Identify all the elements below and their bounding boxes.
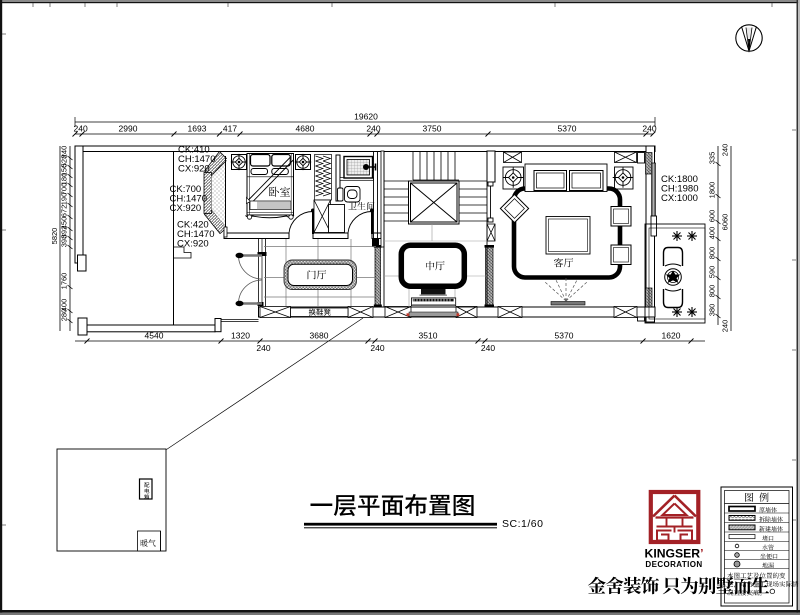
svg-text:CX:920: CX:920: [177, 239, 209, 250]
svg-text:400: 400: [708, 227, 717, 240]
svg-text:335: 335: [708, 152, 717, 165]
svg-text:CX:920: CX:920: [170, 203, 202, 214]
svg-text:19620: 19620: [354, 112, 378, 122]
svg-text:190: 190: [60, 193, 69, 206]
svg-text:3510: 3510: [419, 331, 438, 341]
svg-text:CX:920: CX:920: [178, 164, 210, 175]
svg-text:3750: 3750: [423, 124, 442, 134]
svg-text:240: 240: [366, 124, 380, 134]
svg-text:5370: 5370: [558, 124, 577, 134]
svg-text:240: 240: [74, 124, 88, 134]
svg-text:2990: 2990: [119, 124, 138, 134]
svg-text:3680: 3680: [310, 331, 329, 341]
svg-text:4680: 4680: [296, 124, 315, 134]
svg-text:240: 240: [256, 343, 270, 353]
svg-text:1320: 1320: [231, 331, 250, 341]
svg-text:280: 280: [60, 309, 69, 322]
svg-text:590: 590: [708, 266, 717, 279]
svg-text:5820: 5820: [50, 228, 59, 245]
svg-text:240: 240: [642, 124, 656, 134]
svg-text:240: 240: [721, 320, 730, 333]
svg-text:5370: 5370: [555, 331, 574, 341]
svg-text:1620: 1620: [662, 331, 681, 341]
svg-text:380: 380: [708, 304, 717, 317]
svg-text:6060: 6060: [721, 214, 730, 231]
svg-text:CX:1000: CX:1000: [661, 193, 698, 204]
svg-text:672: 672: [60, 205, 69, 218]
svg-text:417: 417: [223, 124, 237, 134]
svg-text:1800: 1800: [708, 182, 717, 199]
svg-text:800: 800: [708, 285, 717, 298]
svg-text:240: 240: [721, 144, 730, 157]
svg-text:600: 600: [708, 210, 717, 223]
svg-text:1760: 1760: [60, 273, 69, 290]
svg-text:800: 800: [708, 247, 717, 260]
svg-text:DECORATION: DECORATION: [645, 560, 702, 569]
svg-text:KINGSER’: KINGSER’: [645, 547, 704, 561]
svg-text:240: 240: [481, 343, 495, 353]
svg-text:240: 240: [370, 343, 384, 353]
svg-text:SC:1/60: SC:1/60: [502, 518, 543, 530]
svg-text:398: 398: [60, 235, 69, 248]
svg-text:1693: 1693: [188, 124, 207, 134]
